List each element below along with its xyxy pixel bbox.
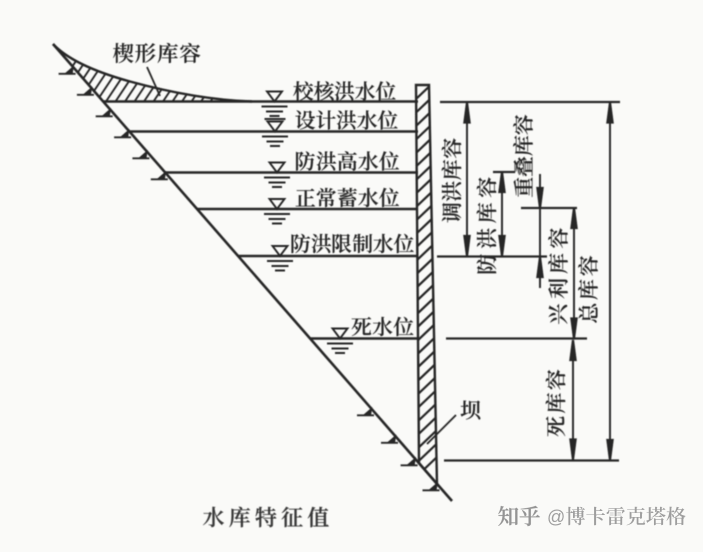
svg-text:@: @ <box>547 507 565 527</box>
